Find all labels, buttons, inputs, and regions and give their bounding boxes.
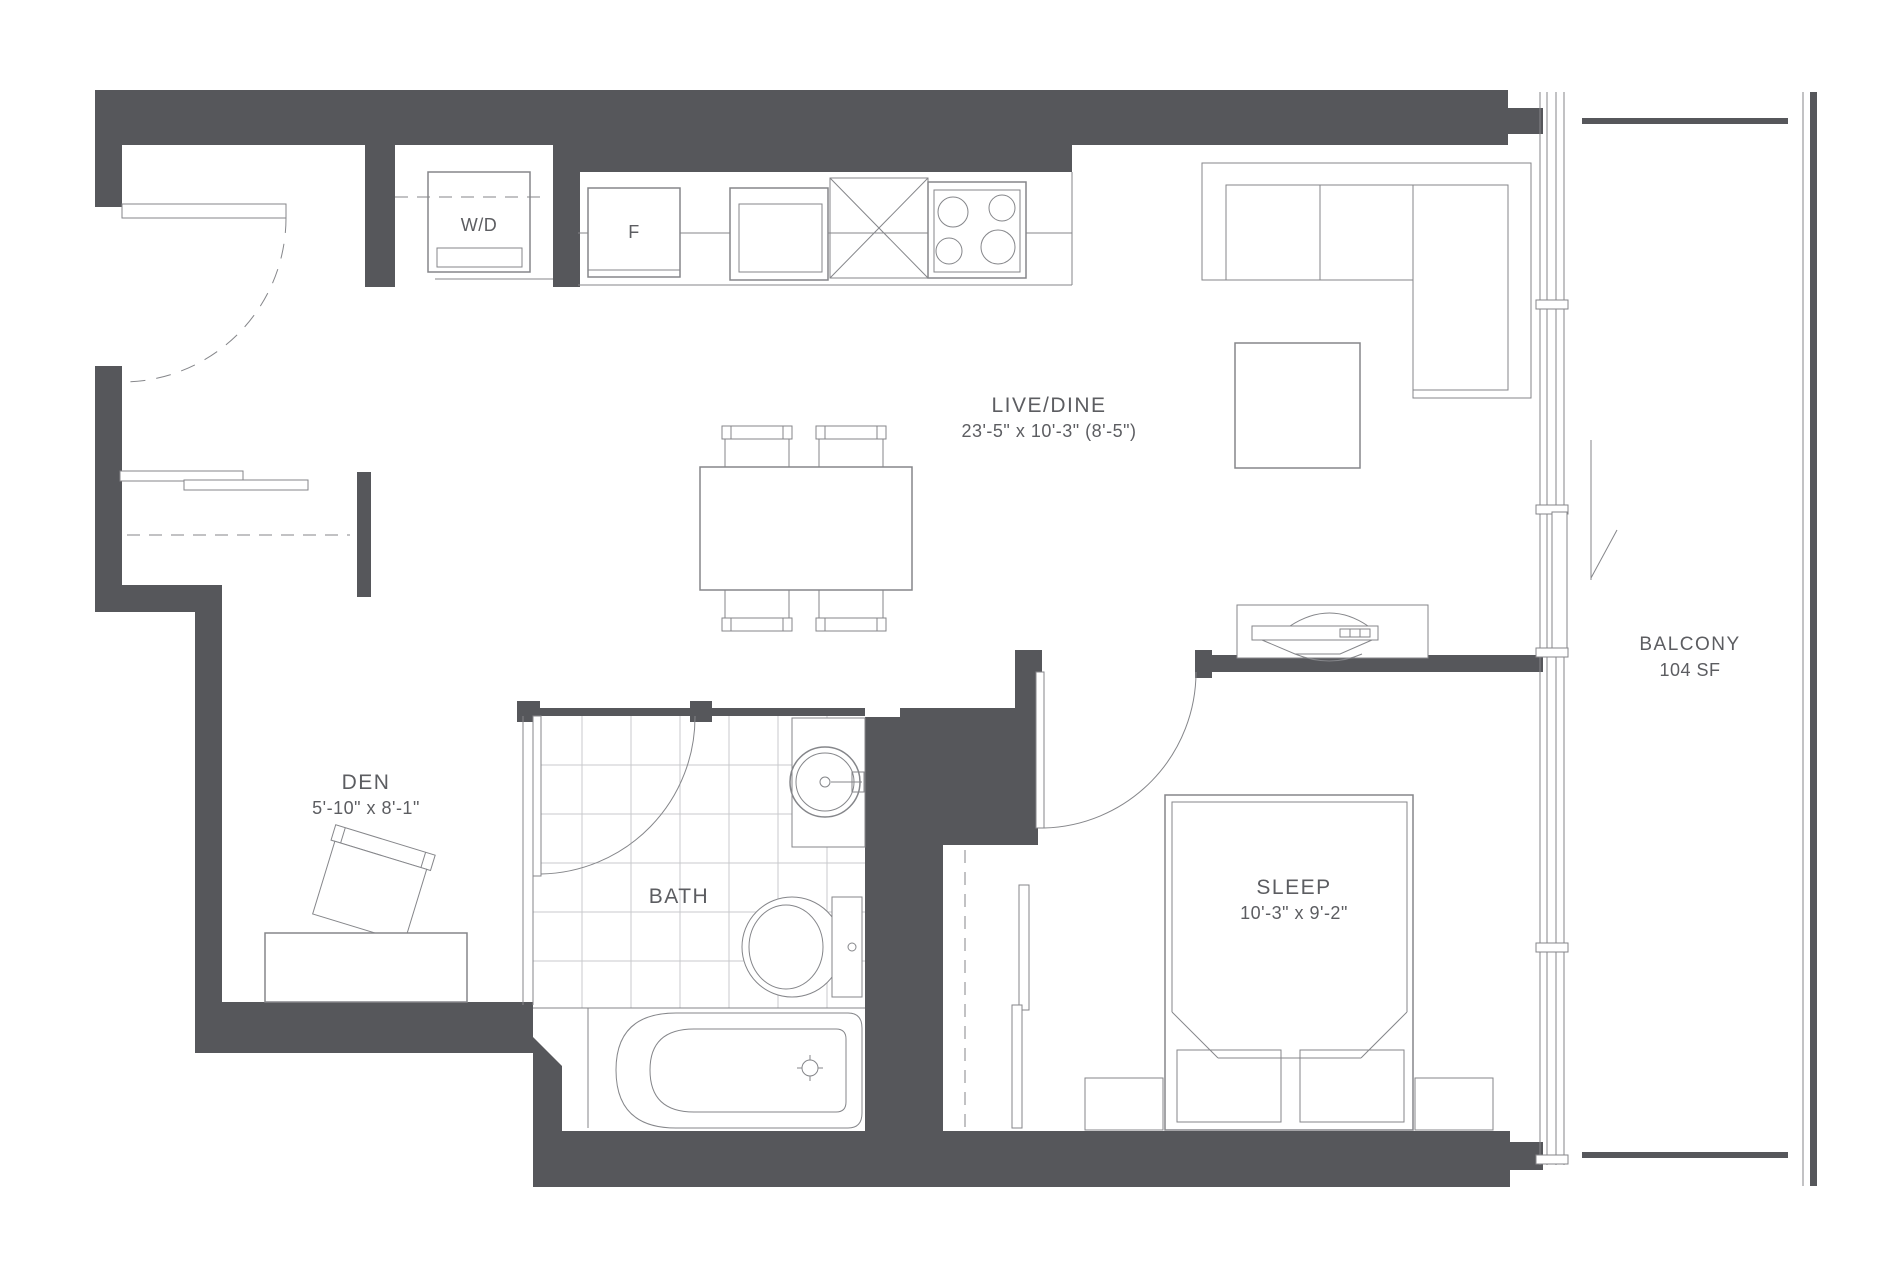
chair-back: [722, 618, 792, 631]
dining-chair: [816, 590, 886, 631]
floor-plan: LIVE/DINE 23'-5" x 10'-3" (8'-5") DEN 5'…: [0, 0, 1900, 1272]
bed-frame: [1165, 795, 1413, 1130]
entry-door-swing-arc: [122, 218, 286, 382]
wall-bath-top: [523, 708, 865, 716]
label-balcony-area: 104 SF: [1659, 660, 1720, 680]
entry: [122, 204, 286, 382]
wall-closet-bottom: [95, 585, 222, 612]
sink-outer: [730, 188, 828, 280]
closet-slider-panel: [184, 480, 308, 490]
wall-bottom: [533, 1131, 1510, 1187]
toilet-bowl: [742, 897, 842, 997]
bath-door-swing-arc: [541, 716, 695, 874]
bedroom: [965, 672, 1493, 1130]
toilet-tank: [832, 897, 862, 997]
label-bath: BATH: [649, 885, 709, 908]
wall-bed-closet-left: [900, 845, 943, 1131]
wall-bath-right: [865, 717, 905, 1131]
wall-entry-left-top: [95, 145, 122, 207]
balcony-door-swing-line: [1591, 530, 1617, 578]
toilet: [742, 897, 862, 997]
wall-window-connector-top: [1508, 108, 1543, 134]
balcony-railing: [1810, 92, 1817, 1186]
chair-back: [722, 426, 792, 439]
chair-seat: [819, 439, 883, 467]
dining-chair: [722, 426, 792, 467]
dining-table: [700, 467, 912, 590]
wall-closet-right: [357, 472, 371, 597]
wall-wd-left: [365, 145, 395, 287]
wall-den-left: [195, 612, 222, 1002]
bathroom: [523, 716, 865, 1128]
wall-kitchen-soffit: [578, 145, 1072, 172]
window-mullion: [1536, 943, 1568, 952]
wall-left-mid: [95, 366, 122, 590]
bathtub-outer: [616, 1013, 862, 1128]
tv-screen: [1252, 626, 1378, 640]
window-mullion: [1536, 300, 1568, 309]
stove: [928, 182, 1026, 278]
bathtub: [616, 1013, 862, 1128]
closet-slider-panel: [1019, 885, 1029, 1010]
chair-seat: [725, 439, 789, 467]
dining-chair: [816, 426, 886, 467]
chair-back: [816, 426, 886, 439]
label-balcony: BALCONY: [1639, 634, 1740, 655]
balcony-top-edge: [1582, 118, 1788, 124]
wall-bedroom-door-post-right: [1195, 650, 1212, 678]
desk-chair: [309, 825, 435, 943]
desk: [265, 933, 467, 1002]
coffee-table: [1235, 343, 1360, 468]
dining-set: [700, 426, 912, 631]
bed: [1165, 795, 1413, 1130]
closet-slider-panel: [1012, 1005, 1022, 1128]
chair-seat: [725, 590, 789, 618]
nightstand: [1085, 1078, 1163, 1130]
tv-console: [1237, 605, 1428, 661]
window-mullion: [1536, 648, 1568, 657]
wall-top: [95, 90, 1508, 145]
entry-door-leaf: [122, 204, 286, 218]
floor-plan-page: LIVE/DINE 23'-5" x 10'-3" (8'-5") DEN 5'…: [0, 0, 1900, 1272]
label-washer-dryer: W/D: [461, 215, 498, 235]
window-mullion: [1536, 1155, 1568, 1164]
label-live-dine: LIVE/DINE: [991, 394, 1106, 417]
bathroom-sink: [790, 718, 865, 847]
balcony-bottom-edge: [1582, 1152, 1788, 1158]
dishwasher: [830, 178, 928, 278]
kitchen-sink: [730, 188, 828, 280]
label-den-dims: 5'-10" x 8'-1": [312, 798, 420, 818]
chair-seat: [819, 590, 883, 618]
wall-plumbing-block: [900, 708, 1038, 845]
label-sleep-dims: 10'-3" x 9'-2": [1240, 903, 1348, 923]
hall-closet: [120, 471, 350, 535]
label-live-dine-dims: 23'-5" x 10'-3" (8'-5"): [961, 421, 1136, 441]
window-wall: [1536, 92, 1617, 1165]
wall-den-bottom: [195, 1002, 562, 1131]
balcony-door-panel: [1552, 512, 1567, 648]
living-room: [1202, 163, 1531, 661]
bedroom-closet: [965, 850, 1029, 1128]
label-den: DEN: [342, 771, 391, 794]
label-fridge: F: [628, 222, 640, 242]
wall-wd-right: [553, 145, 580, 287]
nightstand: [1415, 1078, 1493, 1130]
stove-outer: [928, 182, 1026, 278]
bath-door-leaf: [533, 716, 541, 876]
chair-back: [816, 618, 886, 631]
dining-chair: [722, 590, 792, 631]
bedroom-door-leaf: [1036, 672, 1044, 828]
den: [265, 825, 467, 1002]
label-sleep: SLEEP: [1256, 876, 1331, 899]
